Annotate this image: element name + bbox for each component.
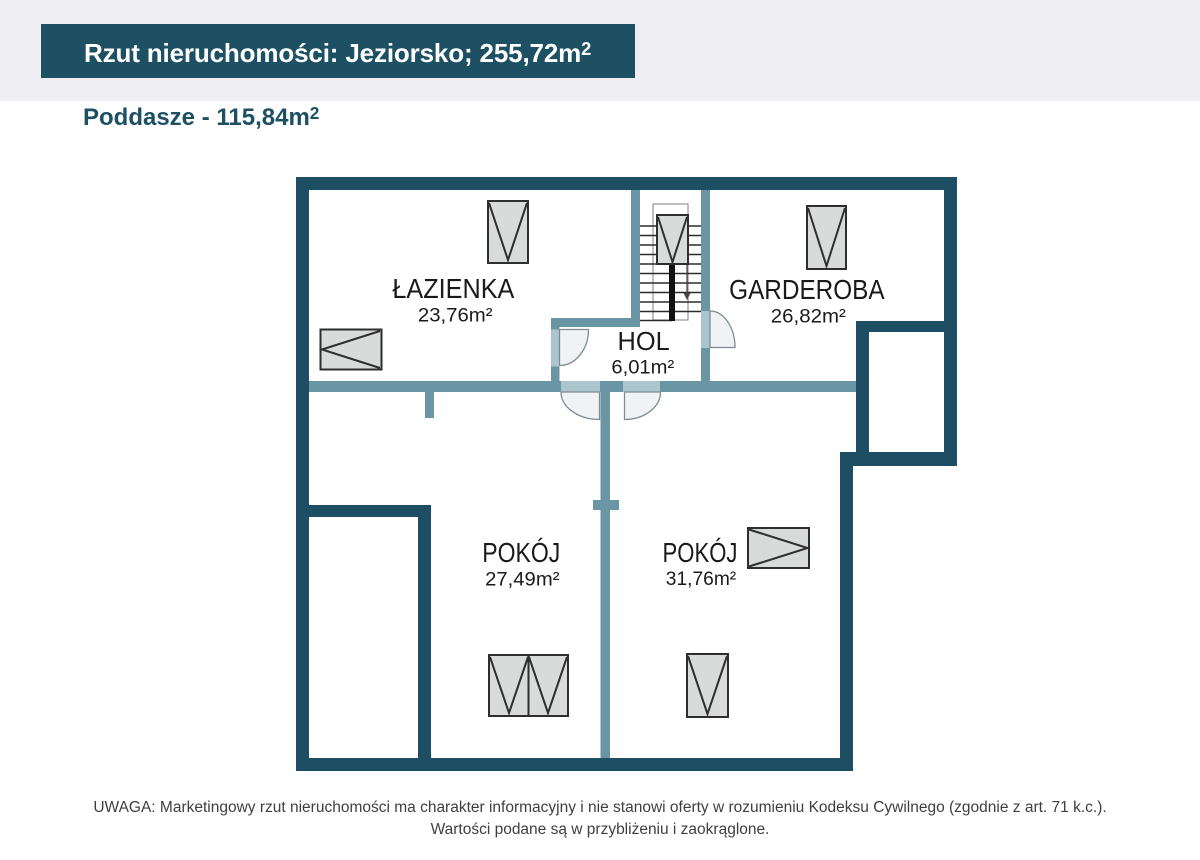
svg-text:31,76m²: 31,76m²: [666, 569, 736, 590]
svg-text:POKÓJ: POKÓJ: [663, 537, 738, 568]
svg-text:27,49m²: 27,49m²: [485, 570, 559, 591]
svg-text:23,76m²: 23,76m²: [418, 306, 493, 327]
svg-text:HOL: HOL: [618, 326, 670, 356]
svg-text:GARDEROBA: GARDEROBA: [729, 274, 885, 305]
svg-text:ŁAZIENKA: ŁAZIENKA: [392, 273, 514, 304]
svg-text:POKÓJ: POKÓJ: [482, 537, 560, 568]
svg-text:26,82m²: 26,82m²: [771, 307, 846, 328]
svg-text:6,01m²: 6,01m²: [611, 358, 674, 379]
